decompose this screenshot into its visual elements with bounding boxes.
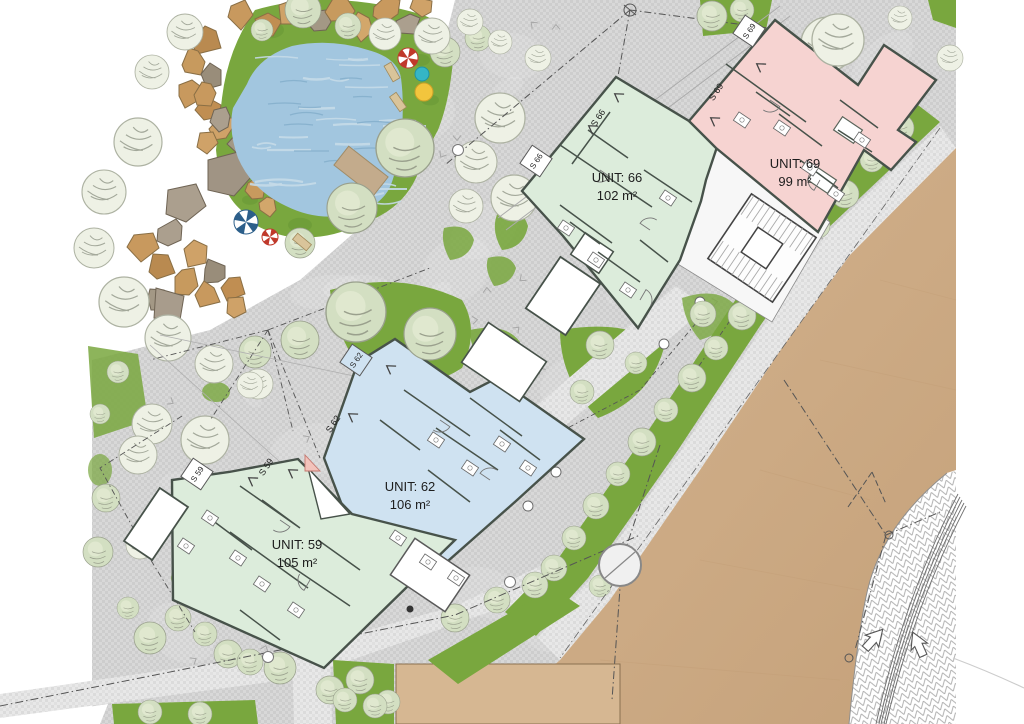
svg-text:UNIT: 62: UNIT: 62 bbox=[385, 479, 436, 494]
svg-text:106 m²: 106 m² bbox=[390, 497, 431, 512]
svg-text:UNIT: 59: UNIT: 59 bbox=[272, 537, 323, 552]
svg-text:102 m²: 102 m² bbox=[597, 188, 638, 203]
svg-text:99 m²: 99 m² bbox=[778, 174, 812, 189]
svg-text:UNIT: 69: UNIT: 69 bbox=[770, 156, 821, 171]
svg-text:105 m²: 105 m² bbox=[277, 555, 318, 570]
svg-text:UNIT: 66: UNIT: 66 bbox=[592, 170, 643, 185]
